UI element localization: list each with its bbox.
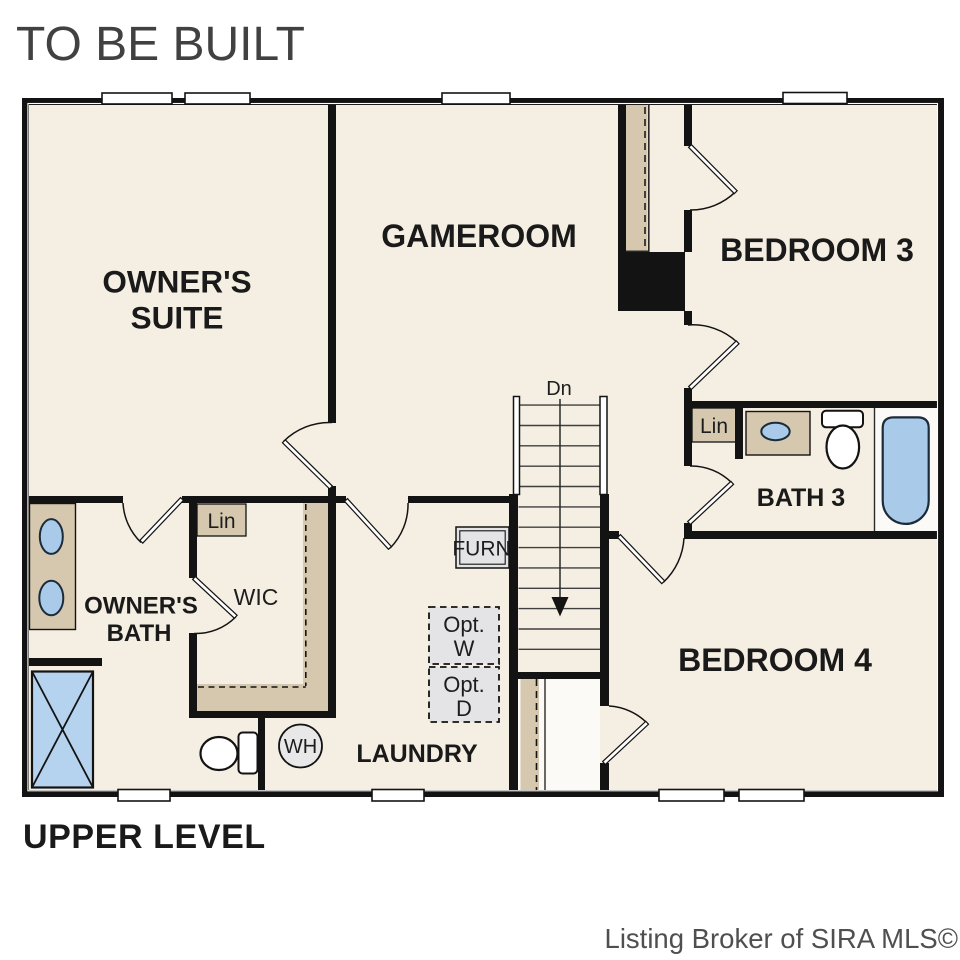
svg-text:OWNER'S: OWNER'S (84, 593, 198, 620)
svg-text:GAMEROOM: GAMEROOM (381, 218, 577, 254)
svg-text:BEDROOM 3: BEDROOM 3 (720, 232, 914, 268)
svg-text:Lin: Lin (207, 510, 235, 533)
svg-text:Dn: Dn (546, 378, 572, 400)
svg-text:UPPER LEVEL: UPPER LEVEL (23, 818, 266, 856)
svg-text:FURN: FURN (452, 538, 510, 561)
svg-text:BATH: BATH (107, 620, 172, 647)
svg-text:SUITE: SUITE (131, 300, 224, 336)
svg-text:Lin: Lin (700, 415, 728, 438)
svg-text:WH: WH (284, 736, 317, 758)
svg-text:OWNER'S: OWNER'S (102, 264, 251, 300)
svg-text:TO BE BUILT: TO BE BUILT (16, 18, 305, 71)
svg-text:LAUNDRY: LAUNDRY (356, 740, 478, 768)
svg-text:D: D (456, 696, 472, 721)
svg-text:BATH 3: BATH 3 (757, 484, 845, 512)
svg-text:W: W (454, 636, 475, 661)
svg-text:BEDROOM 4: BEDROOM 4 (678, 642, 872, 678)
svg-text:WIC: WIC (234, 584, 279, 610)
svg-text:Opt.: Opt. (443, 612, 485, 637)
svg-text:Opt.: Opt. (443, 672, 485, 697)
svg-text:Listing Broker of SIRA MLS©: Listing Broker of SIRA MLS© (605, 923, 958, 954)
